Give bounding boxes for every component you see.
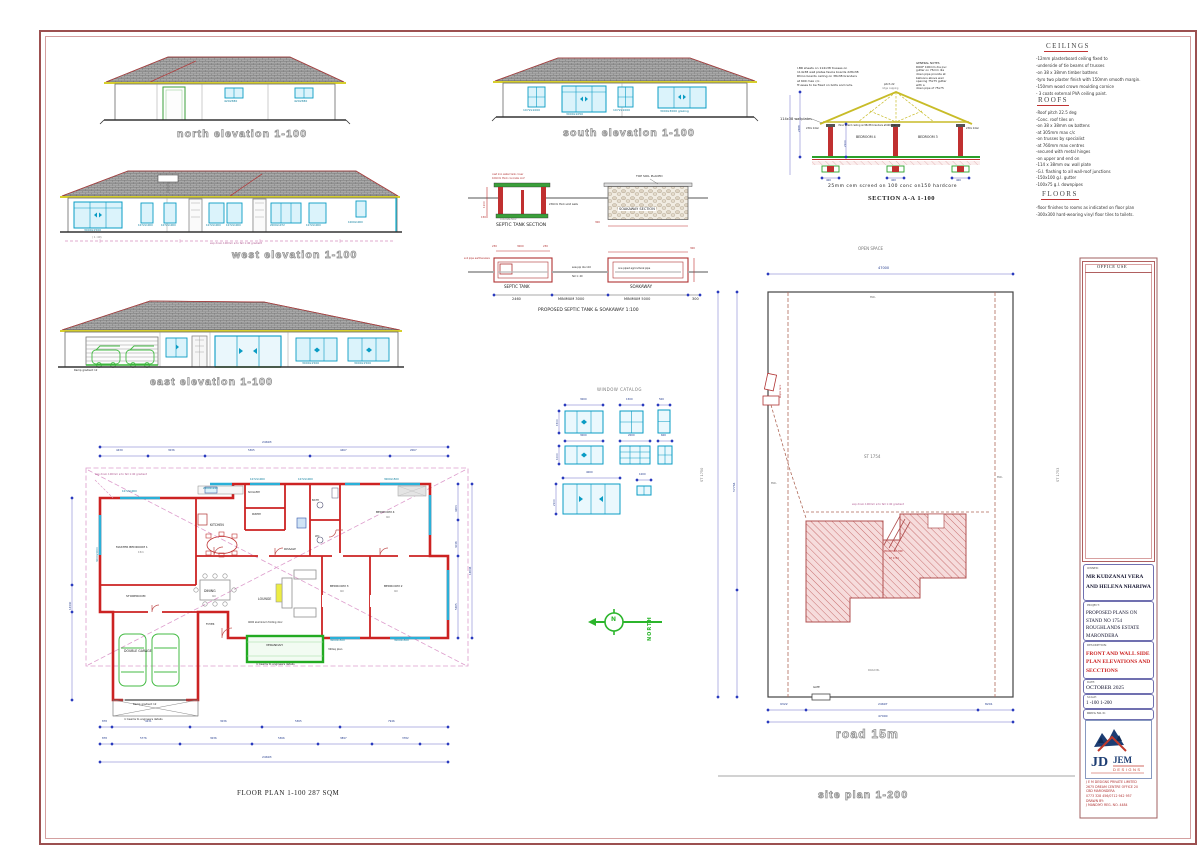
dim-label: 878: [102, 738, 107, 741]
dim-label: 3036: [168, 450, 175, 453]
scale-value: 1 -100 1-200: [1086, 701, 1112, 707]
soakaway-plan-label: SOAKAWAY: [630, 285, 652, 290]
floors-title: FLOORS: [1042, 190, 1078, 198]
dim-label: 1000: [557, 453, 560, 460]
dim-label: 5776: [140, 738, 147, 741]
fall-note: fall 1: 40: [572, 276, 583, 279]
room-area: 15m: [138, 552, 144, 555]
owner-field-label: OWNER:: [1087, 567, 1099, 570]
company-logo: JD JEM DESIGNS: [1086, 721, 1149, 776]
room-area: 9m: [394, 591, 398, 594]
room-label: LOUNGE: [258, 598, 271, 602]
stand-number-right: ST 1753: [1056, 468, 1060, 482]
window-size-label: 1072x1000: [613, 109, 630, 112]
wallplate-label: 114x38 wallplates: [780, 117, 812, 121]
window-size-label: 3000x3000: [97, 547, 100, 562]
dim-label: 3000: [517, 246, 524, 249]
room-label: BEDROOM 2: [384, 585, 403, 588]
dim-label: 3000: [580, 399, 587, 402]
dim-label: 4000: [586, 472, 593, 475]
description-line: PLAN ELEVATIONS AND: [1086, 658, 1150, 666]
window-size-label: 3000x1500: [384, 479, 399, 482]
boundary-label: BWL: [771, 483, 777, 486]
note-line: Rhino boards ceiling on 38x38 branders: [797, 74, 859, 78]
company-line: J E M DESIGNS PRIVATE LIMITED: [1086, 780, 1138, 785]
logo-jem-text: JEM: [1113, 755, 1133, 765]
septic-tank-drawing: [468, 179, 708, 297]
roofs-title: ROOFS: [1038, 96, 1068, 104]
dim-label: 2388: [799, 125, 802, 132]
north-elevation-drawing: [100, 57, 350, 124]
open-space-label: OPEN SPACE: [858, 247, 883, 252]
description-line: FRONT AND WALL SIDE: [1086, 650, 1150, 658]
dim-label: 150: [481, 217, 486, 220]
room-label: BEDROOM 3: [330, 585, 349, 588]
page-border: [40, 31, 1196, 844]
dim-label: 300: [692, 297, 699, 301]
lintel-label: 230x lintel: [966, 128, 979, 131]
window-size-label: 1072x1000: [523, 109, 540, 112]
room-label: DINING: [204, 590, 216, 594]
scale-field-label: SCALE:: [1087, 696, 1097, 699]
ceiling-note: rhino board ceiling on38x38 branders at4…: [838, 125, 901, 128]
dim-label: 3897: [340, 738, 347, 741]
dim-label: 47000: [878, 266, 889, 270]
soakaway-section-label: SOAKAWAY SECTION: [618, 207, 656, 211]
project-line: STAND NO 1754: [1086, 618, 1139, 626]
dim-label: 4439: [116, 450, 123, 453]
dim-label: 4231: [145, 721, 152, 724]
window-size-label: 3000x1500: [302, 362, 319, 365]
description-text: FRONT AND WALL SIDE PLAN ELEVATIONS AND …: [1086, 650, 1150, 675]
rc-beam-note: rc beams to engineers details: [124, 719, 163, 722]
room-label: MASTER BEDROOM 1: [116, 546, 148, 549]
dim-total: 24693: [262, 441, 272, 444]
window-size-label: 3000x1500: [394, 640, 409, 643]
office-use-inner-border: [1085, 264, 1152, 559]
floor-plan-caption: FLOOR PLAN 1-100 287 SQM: [237, 789, 339, 797]
description-field-label: DESCRIPTION:: [1087, 644, 1107, 647]
dim-label: 57764: [733, 482, 736, 492]
dim-label: 2067: [410, 450, 417, 453]
drain-note: exp drain 100mm ø to fall 1:40 gradient: [95, 474, 147, 477]
floors-notes: -floor finishes to rooms as indicated on…: [1036, 204, 1134, 218]
window-size-label: 1072x1000: [250, 479, 265, 482]
footprint-label: ST 1754: [889, 558, 899, 561]
office-use-divider: [1085, 272, 1152, 273]
room-label: BEDROOM 3: [918, 136, 938, 140]
sewer-note: sew pip dia 110: [572, 267, 591, 270]
room-label: BATH: [312, 500, 319, 503]
gradient-note: ( 1 :40): [92, 237, 102, 240]
date-field-label: DATE:: [1087, 681, 1095, 684]
dim-label: 5365: [456, 603, 459, 610]
logo-jd-text: JD: [1091, 755, 1108, 770]
dim-label: 400: [956, 180, 961, 183]
logo-box: JD JEM DESIGNS: [1085, 720, 1152, 779]
road-bl-label: ROAD BL: [868, 670, 880, 673]
stand-number: ST 1754: [864, 455, 880, 460]
window-catalog-drawing: [554, 403, 673, 515]
owner-name: AND HELENA NHARIWA: [1086, 584, 1151, 590]
dim-total: 47000: [878, 715, 888, 718]
east-elevation-drawing: [58, 301, 404, 367]
company-info: J E M DESIGNS PRIVATE LIMITED 2675 DREAM…: [1086, 780, 1138, 808]
dim-label: 1100: [484, 201, 487, 208]
dim-label: 500: [659, 399, 664, 402]
south-elevation-caption: south elevation 1-100: [563, 127, 695, 139]
window-size-label: 1072x1000: [122, 491, 137, 494]
room-label: KITCHEN: [210, 524, 224, 528]
plan-area-note: 320sq plan: [328, 649, 342, 652]
dim-label: 600: [661, 435, 666, 438]
window-size-label: 3000x1500: [354, 362, 371, 365]
project-box: PROJECT: PROPOSED PLANS ON STAND NO 1754…: [1083, 601, 1154, 641]
dim-label: 230: [492, 246, 497, 249]
description-box: DESCRIPTION: FRONT AND WALL SIDE PLAN EL…: [1083, 641, 1154, 679]
floor-note: concrete floor: [500, 219, 517, 222]
note-line: -on 38 x 38mm timber battens: [1036, 69, 1141, 76]
project-field-label: PROJECT:: [1087, 604, 1100, 607]
room-label: BEDROOM 4: [856, 136, 876, 140]
compass-north-label: NORTH: [648, 616, 654, 641]
dim-label: 3000: [580, 435, 587, 438]
dim-label: 9322: [780, 703, 788, 706]
owner-name: MR KUDZANAI VERA: [1086, 574, 1143, 580]
section-general-note: GENERAL NOTES ROOF 100mm dia pvc gutter …: [916, 62, 947, 91]
description-line: SECCTIONS: [1086, 667, 1150, 675]
scale-box: SCALE: 1 -100 1-200: [1083, 694, 1154, 709]
walls-note: 230mm thick solid walls: [549, 204, 578, 207]
project-line: MARONDERA: [1086, 633, 1139, 641]
room-area: 9m: [212, 596, 216, 599]
window-size-label: 1072x1000: [161, 225, 176, 228]
title-underline: [1041, 199, 1079, 200]
dim-label: 230: [543, 246, 548, 249]
dim-label: 400: [826, 180, 831, 183]
room-area: 9m: [340, 591, 344, 594]
drawing-number: DRWG NO. 01: [1087, 712, 1106, 715]
roofs-notes: -Roof pitch 22.5 deg -Conc. roof tiles o…: [1036, 110, 1111, 188]
dim-total: 24693: [262, 756, 272, 759]
site-plan-caption: site plan 1-200: [818, 789, 908, 801]
window-size-label: 2000x1072: [270, 225, 285, 228]
note-line: down pipe of 75x75: [916, 87, 947, 91]
window-size-label: 3000x1050: [566, 113, 583, 116]
agri-pipe-note: one piped agricultural pipe: [618, 268, 650, 271]
dim-label: MINIMUM 5000: [624, 297, 650, 301]
drain-note: exp drain 100mm ø to fall 1:40 gradient: [852, 504, 904, 507]
dim-label: 2100: [554, 499, 557, 506]
room-label: SCULLERY: [248, 492, 260, 495]
note-line: -100x75 g.I. downpipes: [1036, 182, 1111, 189]
room-label: STOREROOM: [126, 595, 145, 598]
ceilings-notes: -12mm plasterboard ceiling fixed to -und…: [1036, 55, 1141, 97]
road-caption: road 15m: [836, 727, 899, 741]
drawing-number-box: DRWG NO. 01: [1083, 709, 1154, 720]
window-size-label: 420x580: [224, 100, 237, 103]
dim-label: 8201: [985, 703, 993, 706]
project-line: ROUGHLANDS ESTATE: [1086, 625, 1139, 633]
dim-label: 4467: [340, 450, 347, 453]
project-line: PROPOSED PLANS ON: [1086, 610, 1139, 618]
room-label: WC: [315, 536, 319, 539]
dim-label: 1500: [626, 399, 633, 402]
title-underline: [1044, 51, 1088, 52]
section-aa-drawing: [790, 90, 980, 179]
window-size-label: 2000x1240: [203, 488, 218, 491]
ramp-note: Ramp gradient 12: [133, 704, 156, 707]
dim-label: 5366: [278, 738, 285, 741]
logo-sub-text: DESIGNS: [1113, 767, 1142, 772]
septic-plan-label: SEPTIC TANK: [504, 285, 530, 290]
room-label: DOUBLE GARAGE: [124, 650, 152, 654]
section-left-note: I.BR sheets on 114x38 trusses on 114x38 …: [797, 66, 859, 87]
dim-label: 3036: [210, 738, 217, 741]
office-use-box: OFFICE USE: [1082, 261, 1155, 562]
door-note: 4000 aluminium folding door: [248, 622, 283, 625]
footprint-label: PROPOSED HSE: [884, 551, 903, 554]
dim-label: 3036: [220, 721, 227, 724]
stand-number-left: ST 1750: [700, 468, 704, 482]
dim-label: 5365: [248, 450, 255, 453]
dim-total: 14340: [70, 602, 73, 610]
window-size-label: 1072x1000: [298, 479, 313, 482]
office-use-title: OFFICE USE: [1097, 264, 1127, 269]
dim-label: 2100: [845, 140, 848, 147]
project-text: PROPOSED PLANS ON STAND NO 1754 ROUGHLAN…: [1086, 610, 1139, 640]
window-size-label: 1000x1000: [348, 222, 363, 225]
room-label: PANTRY: [252, 514, 261, 517]
dim-label: 300: [595, 222, 600, 225]
septic-section-label: SEPTIC TANK SECTION: [496, 223, 546, 228]
east-elevation-caption: east elevation 1-100: [150, 376, 273, 388]
note-line: -tyro two plaster finish with 150mm smoo…: [1036, 76, 1141, 83]
tank-slab-note: 100mm thick concrete roof: [492, 178, 524, 181]
dim-label: 400: [891, 180, 896, 183]
note-line: -300x300 hard-wearing vinyl floor tiles …: [1036, 211, 1134, 218]
dim-label: 2000: [628, 435, 635, 438]
note-line: Trusses to be fixed on bolts and nuts.: [797, 83, 859, 87]
note-line: -150mm wood crown moulding cornice: [1036, 83, 1141, 90]
compass-n-letter: N: [611, 617, 616, 624]
rc-beam-note: rc beams to engineers details: [256, 664, 295, 667]
screed-note: 25mm cem screed on 100 conc on150 hardco…: [828, 184, 957, 189]
north-elevation-caption: north elevation 1-100: [177, 128, 307, 140]
dim-total: 14646: [470, 567, 473, 575]
date-box: DATE: OCTOBER 2025: [1083, 679, 1154, 694]
ridge-label: ridge capping: [882, 88, 898, 91]
dim-label: 2460: [512, 297, 521, 301]
dim-label: 5365: [295, 721, 302, 724]
west-elevation-caption: west elevation 1-100: [232, 249, 358, 261]
note-line: -floor finishes to rooms as indicated on…: [1036, 204, 1134, 211]
room-label: FOYER: [206, 624, 214, 627]
dim-label: 3036: [456, 541, 459, 548]
room-label: PASSAGE: [284, 549, 296, 552]
west-elevation-drawing: [60, 171, 402, 243]
ceilings-title: CEILINGS: [1046, 42, 1090, 50]
window-size-label: 3000x3000 glazing: [660, 110, 689, 113]
drawing-sheet: north elevation 1-100 south elevation 1-…: [0, 0, 1200, 848]
section-caption: SECTION A-A 1-100: [868, 195, 935, 202]
company-line: J MANDIYO REG. NO. 4484: [1086, 803, 1138, 808]
boundary-label: BWL: [870, 297, 876, 300]
ramp-note: Ramp gradient 12: [74, 370, 97, 373]
gate-label: GATE: [813, 687, 820, 690]
soil-pipe-note: soil pipe earthenware: [464, 258, 490, 261]
room-area: 9m: [386, 517, 390, 520]
room-label: BEDROOM 4: [376, 511, 395, 514]
dim-label: 4263: [456, 505, 459, 512]
boundary-label: BWL: [997, 477, 1003, 480]
lintel-label: 230x lintel: [806, 128, 819, 131]
window-size-label: 3000x1500: [330, 640, 345, 643]
company-line: 0773 328 456/0712 942 957: [1086, 794, 1138, 799]
septic-caption: PROPOSED SEPTIC TANK & SOAKAWAY 1:100: [538, 308, 639, 313]
window-size-label: 1072x1000: [138, 225, 153, 228]
septic-symbol-label: septic tank: [780, 385, 783, 398]
window-catalog-title: WINDOW CATALOG: [597, 388, 642, 393]
window-size-label: 420x580: [294, 100, 307, 103]
window-size-label: 3000x1500: [84, 229, 101, 232]
date-value: OCTOBER 2025: [1086, 685, 1124, 691]
dim-label: 7946: [388, 721, 395, 724]
site-plan-drawing: [716, 272, 1075, 776]
window-size-label: 1072x1000: [306, 225, 321, 228]
window-size-label: 1072x1000: [226, 225, 241, 228]
note-line: -12mm plasterboard ceiling fixed to: [1036, 55, 1141, 62]
dim-label: 1000: [639, 474, 646, 477]
dim-label: 3782: [402, 738, 409, 741]
title-underline: [1037, 105, 1069, 106]
dim-label: 878: [102, 721, 107, 724]
topsoil-note: TOP SOIL PLACED: [636, 175, 663, 178]
owner-box: OWNER: MR KUDZANAI VERA AND HELENA NHARI…: [1083, 564, 1154, 601]
dim-label: 24697: [878, 703, 888, 706]
note-line: -underside of tie beams of trusses: [1036, 62, 1141, 69]
window-size-label: 1072x1000: [206, 225, 221, 228]
room-label: VERANDAH: [266, 644, 283, 647]
drain-note: exp drain 100mm ø to fall 1:40 gradient: [210, 243, 262, 246]
dim-label: MINIMUM 3000: [558, 297, 584, 301]
dim-label: 1500: [557, 419, 560, 426]
dim-label: 300: [690, 248, 695, 251]
